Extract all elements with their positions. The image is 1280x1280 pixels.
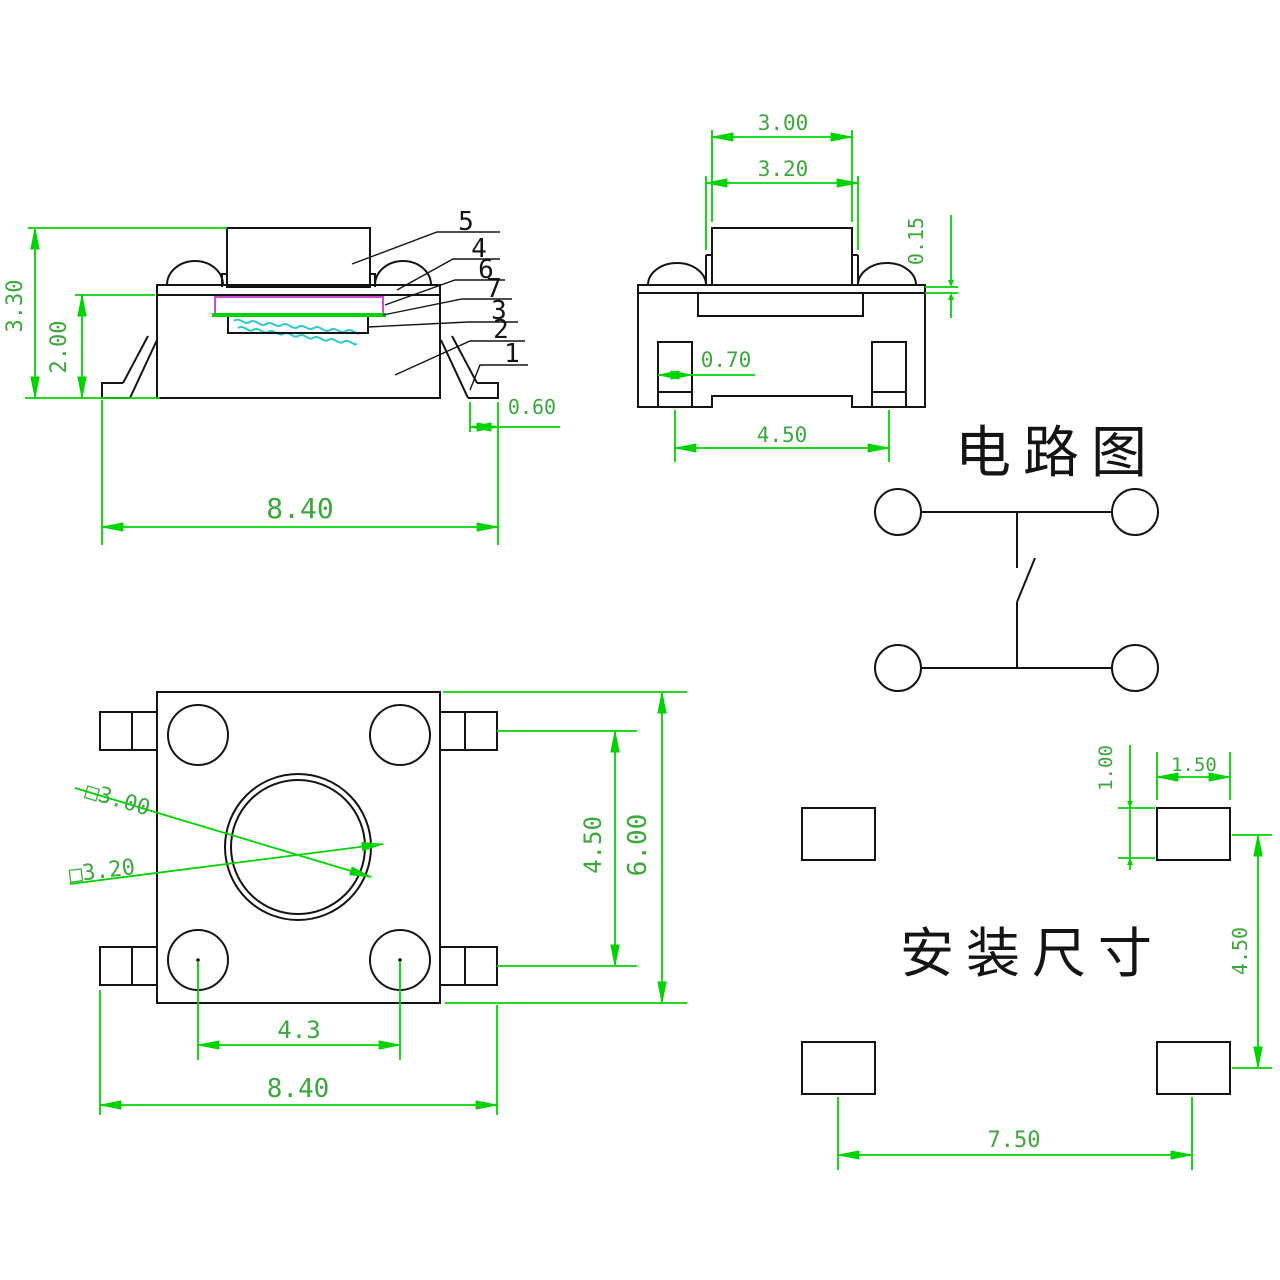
side-view-dimensions: 3.30 2.00 0.60 8.40 xyxy=(3,228,560,545)
terminal-node-top-right xyxy=(1112,489,1158,535)
dome-contact-squiggle-1 xyxy=(234,320,360,334)
top-view: □3.00 □3.20 4.3 8.40 4.50 6.00 xyxy=(68,692,687,1115)
solder-pad-bottom-left xyxy=(802,1042,875,1094)
corner-dome-top-right xyxy=(370,705,430,765)
right-terminal-front xyxy=(872,342,906,407)
terminal-node-bottom-left xyxy=(875,645,921,691)
left-lead xyxy=(102,336,157,398)
tab-bottom-left xyxy=(100,947,157,985)
side-view-geometry xyxy=(102,228,498,398)
dim-text-plate-thickness: 0.15 xyxy=(904,217,928,265)
ext-1-00 xyxy=(1118,745,1155,870)
solder-pad-bottom-right xyxy=(1157,1042,1230,1094)
dim-text-body-height: 2.00 xyxy=(47,321,72,374)
switch-body-side xyxy=(157,295,440,398)
contact-film-layer xyxy=(212,313,386,317)
dome-bumps-side xyxy=(167,261,431,285)
switch-body-top xyxy=(157,692,440,1003)
circuit-diagram-title: 电路图 xyxy=(955,421,1159,486)
part-label-1: 1 xyxy=(504,339,520,369)
ext-4-50-top-view xyxy=(497,731,637,966)
circuit-diagram: 电路图 xyxy=(875,421,1159,691)
center-dot-bottom-right xyxy=(398,958,402,962)
dim-text-terminal-width: 0.70 xyxy=(701,348,752,372)
arrows-0-15 xyxy=(948,280,954,300)
drawing-sheet: 5 4 6 7 3 2 1 3.30 2.00 0.60 8.40 xyxy=(0,0,1280,1280)
top-view-geometry xyxy=(100,692,497,1003)
dim-text-stem-top: 3.00 xyxy=(758,111,809,135)
dim-text-stem-base: 3.20 xyxy=(758,157,809,181)
front-view: 3.00 3.20 0.15 0.70 4.50 xyxy=(638,111,958,462)
dim-text-lead-foot: 0.60 xyxy=(508,395,556,419)
dim-text-pad-pitch-vertical: 4.50 xyxy=(1228,927,1252,975)
center-dot-bottom-left xyxy=(196,958,200,962)
mounting-layout-title: 安装尺寸 xyxy=(900,922,1164,985)
tab-top-left xyxy=(100,712,157,750)
switch-body-front xyxy=(638,285,925,407)
solder-pad-top-left xyxy=(802,808,875,860)
drawing-canvas: 5 4 6 7 3 2 1 3.30 2.00 0.60 8.40 xyxy=(0,0,1280,1280)
dome-contact-squiggle-2 xyxy=(238,327,357,344)
terminal-node-bottom-right xyxy=(1112,645,1158,691)
right-lead xyxy=(441,336,498,398)
dim-text-pad-width: 1.50 xyxy=(1171,754,1217,776)
push-button-front xyxy=(712,228,852,285)
dim-text-pad-pitch-horizontal: 7.50 xyxy=(988,1128,1041,1153)
ext-3-20 xyxy=(706,176,858,250)
dim-text-pad-height: 1.00 xyxy=(1095,745,1117,791)
dim-text-total-height: 3.30 xyxy=(3,280,28,333)
dim-text-stem-square-base: □3.20 xyxy=(68,855,137,888)
mounting-layout: 安装尺寸 1.00 1.50 4.50 7.50 xyxy=(802,745,1272,1170)
tab-bottom-right xyxy=(440,947,497,985)
terminal-node-top-left xyxy=(875,489,921,535)
dim-text-total-width-top: 8.40 xyxy=(267,1074,330,1104)
membrane-layer xyxy=(215,297,383,314)
part-label-5: 5 xyxy=(458,207,474,237)
dome-bumps-front xyxy=(648,263,916,285)
tab-top-right xyxy=(440,712,497,750)
ext-0-15 xyxy=(925,215,958,318)
dim-text-terminal-pitch: 4.50 xyxy=(757,423,808,447)
dim-text-body-width: 6.00 xyxy=(623,814,653,877)
dim-text-tab-pitch: 4.50 xyxy=(579,816,607,874)
base-recess-front xyxy=(698,293,863,316)
dim-text-dome-pitch: 4.3 xyxy=(277,1016,320,1044)
push-button-side xyxy=(227,228,370,287)
dim-text-stem-square-top: □3.00 xyxy=(82,779,153,822)
switch-symbol-wiring xyxy=(921,512,1112,668)
button-flange-front xyxy=(706,255,858,285)
front-view-geometry xyxy=(638,228,925,407)
solder-pad-top-right xyxy=(1157,808,1230,860)
side-view: 5 4 6 7 3 2 1 3.30 2.00 0.60 8.40 xyxy=(3,207,560,545)
dim-text-total-width: 8.40 xyxy=(266,492,333,525)
corner-dome-top-left xyxy=(168,705,228,765)
button-circle-inner xyxy=(231,780,365,914)
button-circle-outer xyxy=(225,774,371,920)
front-view-dimensions: 3.00 3.20 0.15 0.70 4.50 xyxy=(658,111,958,462)
